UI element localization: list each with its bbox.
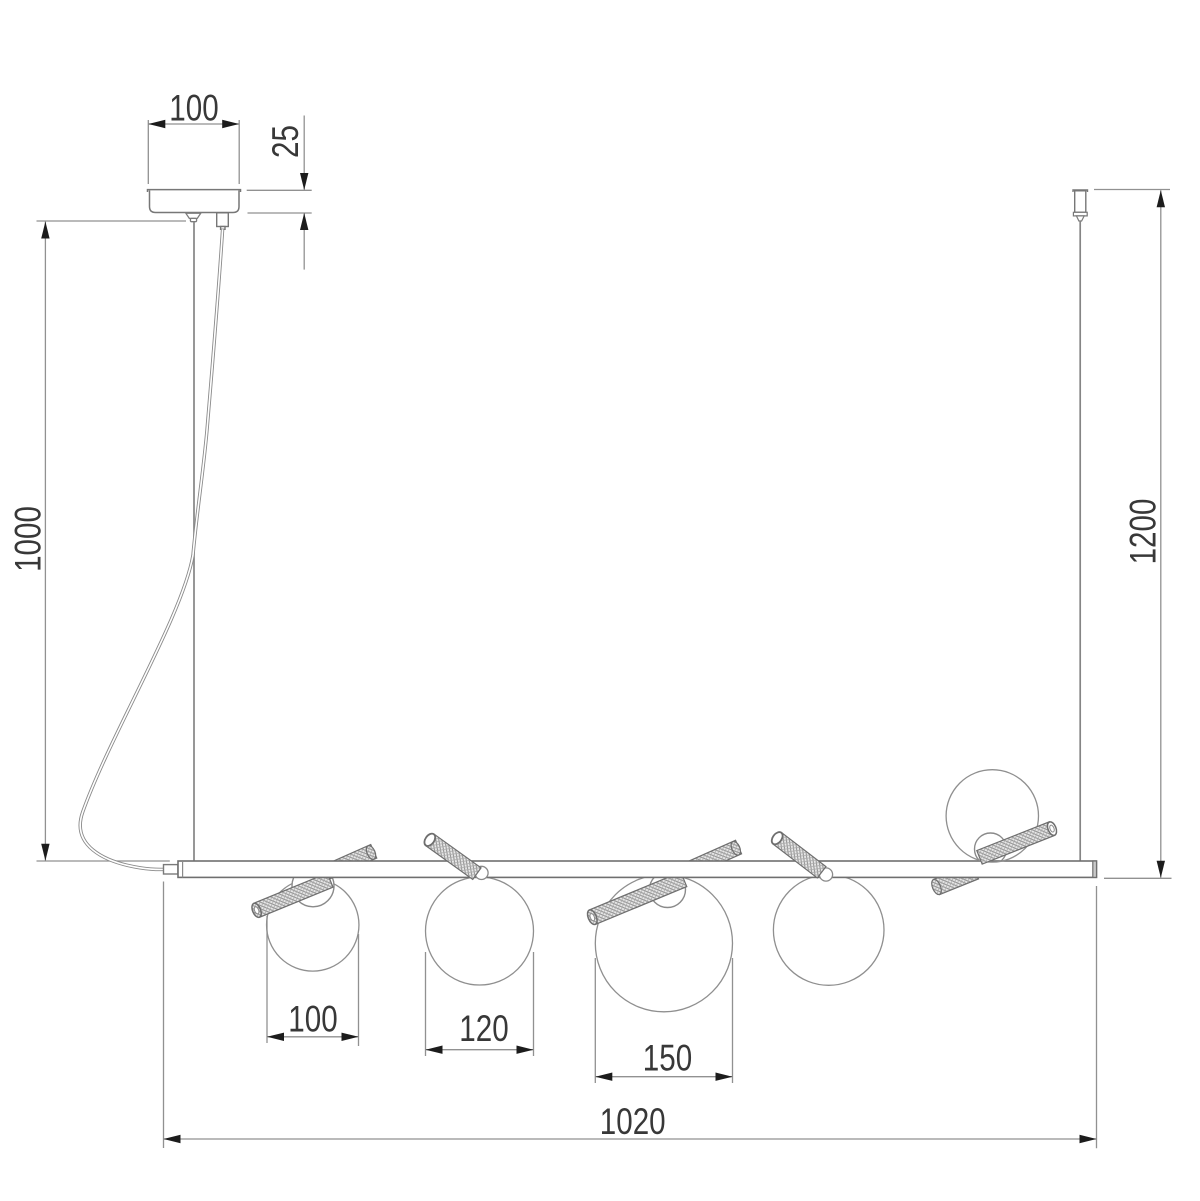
svg-text:25: 25 — [266, 125, 307, 158]
svg-text:150: 150 — [643, 1038, 692, 1079]
svg-text:1020: 1020 — [600, 1102, 666, 1143]
svg-text:120: 120 — [459, 1009, 508, 1050]
svg-text:1200: 1200 — [1124, 499, 1165, 565]
svg-text:100: 100 — [288, 999, 337, 1040]
svg-text:1000: 1000 — [9, 506, 50, 572]
svg-text:100: 100 — [169, 89, 218, 130]
